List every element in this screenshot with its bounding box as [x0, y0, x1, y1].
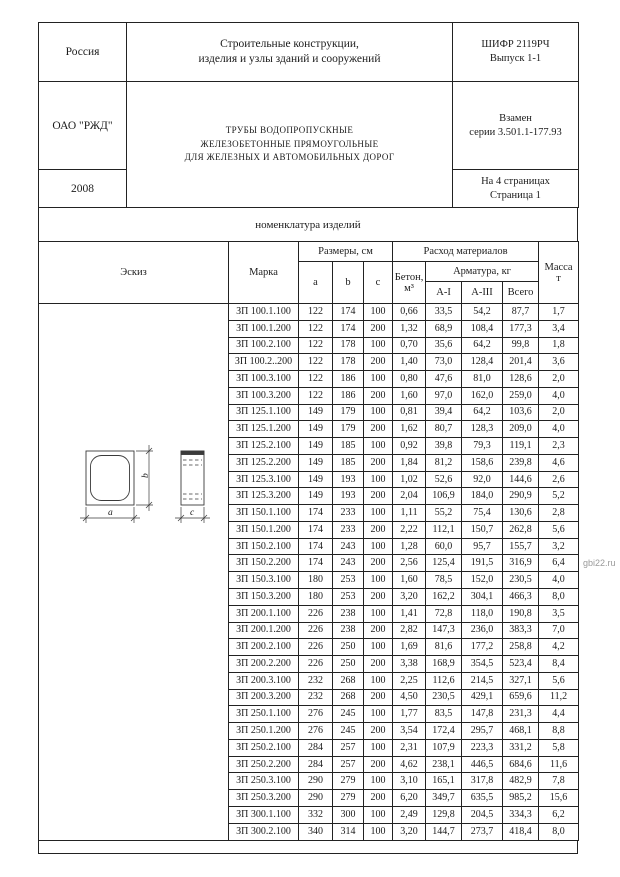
cell-b: 243 — [333, 538, 364, 555]
product-title-line3: ДЛЯ ЖЕЛЕЗНЫХ И АВТОМОБИЛЬНЫХ ДОРОГ — [127, 151, 452, 165]
cell-b: 178 — [333, 337, 364, 354]
dim-label-a: a — [108, 508, 113, 518]
cell-mass: 4,4 — [539, 706, 579, 723]
column-header-materials: Расход материалов — [393, 242, 539, 262]
dim-label-c: c — [190, 508, 195, 518]
cell-mark: ЗП 150.2.100 — [229, 538, 299, 555]
cell-mark: ЗП 125.1.200 — [229, 421, 299, 438]
cell-a: 122 — [299, 354, 333, 371]
cell-a1: 33,5 — [426, 304, 462, 321]
table-header: Эскиз Марка Размеры, см Расход материало… — [39, 242, 579, 304]
column-header-dim-c: c — [364, 262, 393, 304]
cell-a1: 230,5 — [426, 689, 462, 706]
cell-a1: 97,0 — [426, 387, 462, 404]
cell-a: 226 — [299, 656, 333, 673]
product-title-line1: ТРУБЫ ВОДОПРОПУСКНЫЕ — [127, 124, 452, 138]
cell-a1: 55,2 — [426, 505, 462, 522]
mass-header-line1: Масса — [539, 262, 578, 273]
pagination-line1: На 4 страницах — [453, 175, 578, 189]
cell-b: 174 — [333, 304, 364, 321]
cell-a3: 429,1 — [462, 689, 503, 706]
cell-a1: 238,1 — [426, 756, 462, 773]
cell-c: 200 — [364, 723, 393, 740]
cell-mark: ЗП 100.3.100 — [229, 371, 299, 388]
cell-b: 257 — [333, 756, 364, 773]
country-cell: Россия — [39, 23, 127, 82]
cell-total: 290,9 — [503, 488, 539, 505]
cell-concrete: 3,38 — [393, 656, 426, 673]
cell-mass: 2,0 — [539, 371, 579, 388]
cell-total: 209,0 — [503, 421, 539, 438]
table-row: a b c ЗП 100.1.1001221741000,6633,554,28… — [39, 304, 579, 321]
cell-a: 226 — [299, 622, 333, 639]
cell-a: 232 — [299, 689, 333, 706]
cell-mark: ЗП 125.2.100 — [229, 438, 299, 455]
column-header-rebar-total: Всего — [503, 282, 539, 304]
cell-mass: 7,0 — [539, 622, 579, 639]
cell-c: 100 — [364, 605, 393, 622]
cell-a3: 177,2 — [462, 639, 503, 656]
cell-c: 100 — [364, 806, 393, 823]
cell-a3: 162,0 — [462, 387, 503, 404]
cell-a1: 35,6 — [426, 337, 462, 354]
cell-a3: 295,7 — [462, 723, 503, 740]
cell-a3: 128,3 — [462, 421, 503, 438]
cell-total: 128,6 — [503, 371, 539, 388]
cell-a3: 92,0 — [462, 471, 503, 488]
column-header-dim-a: a — [299, 262, 333, 304]
replaces-cell: Взамен серии 3.501.1-177.93 — [453, 82, 579, 170]
cell-a1: 349,7 — [426, 790, 462, 807]
cell-total: 316,9 — [503, 555, 539, 572]
cell-mark: ЗП 150.3.100 — [229, 572, 299, 589]
cell-c: 200 — [364, 421, 393, 438]
cell-c: 100 — [364, 404, 393, 421]
cell-b: 238 — [333, 622, 364, 639]
cell-concrete: 2,22 — [393, 521, 426, 538]
cell-total: 259,0 — [503, 387, 539, 404]
cell-mass: 8,0 — [539, 589, 579, 606]
cell-concrete: 3,54 — [393, 723, 426, 740]
cell-a1: 168,9 — [426, 656, 462, 673]
cell-c: 100 — [364, 739, 393, 756]
cell-c: 200 — [364, 656, 393, 673]
cell-mass: 4,0 — [539, 421, 579, 438]
column-header-concrete: Бетон, м³ — [393, 262, 426, 304]
column-header-rebar-a3: А-III — [462, 282, 503, 304]
cell-b: 268 — [333, 689, 364, 706]
cell-a3: 95,7 — [462, 538, 503, 555]
cell-a: 149 — [299, 438, 333, 455]
column-header-dim-b: b — [333, 262, 364, 304]
cell-c: 100 — [364, 773, 393, 790]
cell-b: 300 — [333, 806, 364, 823]
pipe-sketch-cell: a b c — [39, 304, 229, 841]
cell-a: 122 — [299, 320, 333, 337]
cell-mark: ЗП 250.1.200 — [229, 723, 299, 740]
cell-total: 87,7 — [503, 304, 539, 321]
cell-concrete: 1,28 — [393, 538, 426, 555]
cell-b: 314 — [333, 823, 364, 840]
cell-a3: 108,4 — [462, 320, 503, 337]
cell-total: 262,8 — [503, 521, 539, 538]
cell-c: 100 — [364, 572, 393, 589]
cell-a1: 39,4 — [426, 404, 462, 421]
cell-a3: 81,0 — [462, 371, 503, 388]
cell-concrete: 1,11 — [393, 505, 426, 522]
cell-total: 466,3 — [503, 589, 539, 606]
cell-concrete: 2,49 — [393, 806, 426, 823]
cell-b: 233 — [333, 505, 364, 522]
cell-a1: 83,5 — [426, 706, 462, 723]
cell-a: 180 — [299, 572, 333, 589]
cell-a: 122 — [299, 304, 333, 321]
cell-mark: ЗП 250.3.200 — [229, 790, 299, 807]
cell-a3: 75,4 — [462, 505, 503, 522]
cell-a3: 128,4 — [462, 354, 503, 371]
cell-a1: 39,8 — [426, 438, 462, 455]
cipher-line2: Выпуск 1-1 — [453, 52, 578, 66]
cell-b: 257 — [333, 739, 364, 756]
cell-mass: 8,4 — [539, 656, 579, 673]
cell-b: 193 — [333, 471, 364, 488]
cell-concrete: 3,20 — [393, 589, 426, 606]
cell-mark: ЗП 100.2.100 — [229, 337, 299, 354]
cell-mark: ЗП 250.1.100 — [229, 706, 299, 723]
cell-total: 201,4 — [503, 354, 539, 371]
cell-concrete: 2,82 — [393, 622, 426, 639]
cell-concrete: 4,50 — [393, 689, 426, 706]
cell-a1: 125,4 — [426, 555, 462, 572]
cell-concrete: 1,60 — [393, 572, 426, 589]
cell-c: 200 — [364, 756, 393, 773]
replaces-line1: Взамен — [453, 112, 578, 126]
cipher-cell: ШИФР 2119РЧ Выпуск 1-1 — [453, 23, 579, 82]
cell-total: 177,3 — [503, 320, 539, 337]
cell-concrete: 6,20 — [393, 790, 426, 807]
cell-a1: 106,9 — [426, 488, 462, 505]
cell-mass: 4,2 — [539, 639, 579, 656]
cell-b: 243 — [333, 555, 364, 572]
cell-a: 174 — [299, 505, 333, 522]
cell-c: 200 — [364, 689, 393, 706]
cell-a3: 214,5 — [462, 672, 503, 689]
cell-concrete: 1,62 — [393, 421, 426, 438]
cell-c: 100 — [364, 304, 393, 321]
cell-mark: ЗП 200.2.200 — [229, 656, 299, 673]
cell-concrete: 0,80 — [393, 371, 426, 388]
cell-b: 268 — [333, 672, 364, 689]
product-title-line2: ЖЕЛЕЗОБЕТОННЫЕ ПРЯМОУГОЛЬНЫЕ — [127, 138, 452, 152]
cell-mark: ЗП 100.2..200 — [229, 354, 299, 371]
cell-a3: 64,2 — [462, 337, 503, 354]
cell-mark: ЗП 250.3.100 — [229, 773, 299, 790]
cell-c: 100 — [364, 823, 393, 840]
cell-a3: 236,0 — [462, 622, 503, 639]
cell-mass: 2,3 — [539, 438, 579, 455]
cell-c: 100 — [364, 639, 393, 656]
cell-mark: ЗП 300.2.100 — [229, 823, 299, 840]
cell-a: 332 — [299, 806, 333, 823]
cell-b: 186 — [333, 371, 364, 388]
cell-a1: 81,6 — [426, 639, 462, 656]
cell-b: 250 — [333, 639, 364, 656]
cipher-line1: ШИФР 2119РЧ — [453, 38, 578, 52]
cell-a1: 112,1 — [426, 521, 462, 538]
cell-b: 179 — [333, 404, 364, 421]
cell-a: 149 — [299, 421, 333, 438]
cell-mass: 2,6 — [539, 471, 579, 488]
cell-total: 334,3 — [503, 806, 539, 823]
cell-c: 200 — [364, 387, 393, 404]
cell-concrete: 2,25 — [393, 672, 426, 689]
cell-concrete: 0,66 — [393, 304, 426, 321]
cell-mark: ЗП 200.2.100 — [229, 639, 299, 656]
cell-a3: 304,1 — [462, 589, 503, 606]
cell-mark: ЗП 200.1.100 — [229, 605, 299, 622]
cell-concrete: 0,81 — [393, 404, 426, 421]
cell-mass: 2,0 — [539, 404, 579, 421]
cell-mark: ЗП 200.3.200 — [229, 689, 299, 706]
catalog-title-cell: Строительные конструкции, изделия и узлы… — [127, 23, 453, 82]
cell-mark: ЗП 150.3.200 — [229, 589, 299, 606]
cell-mark: ЗП 125.3.200 — [229, 488, 299, 505]
cell-a3: 354,5 — [462, 656, 503, 673]
cell-a: 226 — [299, 605, 333, 622]
cell-concrete: 1,02 — [393, 471, 426, 488]
cell-a: 290 — [299, 773, 333, 790]
cell-a1: 112,6 — [426, 672, 462, 689]
catalog-title-line2: изделия и узлы зданий и сооружений — [127, 52, 452, 67]
cell-concrete: 1,84 — [393, 454, 426, 471]
cell-a1: 81,2 — [426, 454, 462, 471]
year-cell: 2008 — [39, 170, 127, 208]
cell-concrete: 3,10 — [393, 773, 426, 790]
cell-mass: 2,8 — [539, 505, 579, 522]
column-header-mark: Марка — [229, 242, 299, 304]
cell-a: 122 — [299, 387, 333, 404]
replaces-line2: серии 3.501.1-177.93 — [453, 126, 578, 140]
cell-b: 253 — [333, 589, 364, 606]
cell-total: 523,4 — [503, 656, 539, 673]
pipe-sketch-drawing: a b c — [39, 304, 229, 544]
cell-concrete: 4,62 — [393, 756, 426, 773]
cell-b: 185 — [333, 438, 364, 455]
cell-mass: 1,7 — [539, 304, 579, 321]
cell-mark: ЗП 200.1.200 — [229, 622, 299, 639]
cell-total: 327,1 — [503, 672, 539, 689]
title-block-row-1: Россия Строительные конструкции, изделия… — [39, 23, 579, 82]
cell-concrete: 0,92 — [393, 438, 426, 455]
cell-mark: ЗП 100.1.200 — [229, 320, 299, 337]
cell-a: 149 — [299, 404, 333, 421]
cell-c: 100 — [364, 371, 393, 388]
cell-mass: 4,0 — [539, 572, 579, 589]
title-block: Россия Строительные конструкции, изделия… — [38, 22, 579, 208]
cell-a1: 129,8 — [426, 806, 462, 823]
concrete-header-line2: м³ — [393, 283, 425, 294]
cell-mass: 8,0 — [539, 823, 579, 840]
catalog-title-line1: Строительные конструкции, — [127, 37, 452, 52]
cell-b: 174 — [333, 320, 364, 337]
cell-a3: 184,0 — [462, 488, 503, 505]
cell-c: 200 — [364, 790, 393, 807]
cell-concrete: 1,60 — [393, 387, 426, 404]
column-header-mass: Масса т — [539, 242, 579, 304]
cell-a: 180 — [299, 589, 333, 606]
cell-a: 232 — [299, 672, 333, 689]
cell-concrete: 3,20 — [393, 823, 426, 840]
cell-c: 200 — [364, 320, 393, 337]
cell-a1: 147,3 — [426, 622, 462, 639]
cell-a: 149 — [299, 471, 333, 488]
cell-concrete: 2,31 — [393, 739, 426, 756]
cell-a1: 162,2 — [426, 589, 462, 606]
cell-a3: 446,5 — [462, 756, 503, 773]
cell-mass: 5,8 — [539, 739, 579, 756]
pipe-front-view — [86, 451, 134, 505]
cell-mass: 5,2 — [539, 488, 579, 505]
cell-b: 193 — [333, 488, 364, 505]
cell-a1: 144,7 — [426, 823, 462, 840]
cell-c: 200 — [364, 454, 393, 471]
cell-total: 119,1 — [503, 438, 539, 455]
cell-b: 250 — [333, 656, 364, 673]
cell-concrete: 1,32 — [393, 320, 426, 337]
cell-a: 290 — [299, 790, 333, 807]
cell-a3: 158,6 — [462, 454, 503, 471]
cell-a: 174 — [299, 555, 333, 572]
cell-b: 253 — [333, 572, 364, 589]
cell-a: 174 — [299, 538, 333, 555]
cell-a1: 107,9 — [426, 739, 462, 756]
concrete-header-line1: Бетон, — [393, 272, 425, 283]
cell-mark: ЗП 125.3.100 — [229, 471, 299, 488]
cell-mass: 6,2 — [539, 806, 579, 823]
cell-a: 174 — [299, 521, 333, 538]
cell-c: 200 — [364, 589, 393, 606]
cell-c: 200 — [364, 555, 393, 572]
cell-a3: 152,0 — [462, 572, 503, 589]
cell-mass: 5,6 — [539, 521, 579, 538]
cell-mark: ЗП 100.1.100 — [229, 304, 299, 321]
cell-a: 149 — [299, 454, 333, 471]
cell-b: 179 — [333, 421, 364, 438]
pagination-cell: На 4 страницах Страница 1 — [453, 170, 579, 208]
cell-c: 100 — [364, 538, 393, 555]
cell-total: 482,9 — [503, 773, 539, 790]
cell-mass: 6,4 — [539, 555, 579, 572]
cell-mark: ЗП 300.1.100 — [229, 806, 299, 823]
cell-c: 100 — [364, 471, 393, 488]
cell-a: 276 — [299, 723, 333, 740]
cell-mass: 15,6 — [539, 790, 579, 807]
cell-a: 284 — [299, 756, 333, 773]
cell-a3: 64,2 — [462, 404, 503, 421]
cell-mass: 3,5 — [539, 605, 579, 622]
cell-concrete: 2,04 — [393, 488, 426, 505]
cell-b: 238 — [333, 605, 364, 622]
cell-total: 331,2 — [503, 739, 539, 756]
watermark: gbi22.ru — [583, 558, 616, 568]
cell-a1: 80,7 — [426, 421, 462, 438]
organization-cell: ОАО "РЖД" — [39, 82, 127, 170]
cell-total: 99,8 — [503, 337, 539, 354]
cell-total: 231,3 — [503, 706, 539, 723]
cell-c: 200 — [364, 622, 393, 639]
column-header-dimensions: Размеры, см — [299, 242, 393, 262]
cell-total: 190,8 — [503, 605, 539, 622]
nomenclature-table: Эскиз Марка Размеры, см Расход материало… — [38, 241, 579, 841]
cell-total: 144,6 — [503, 471, 539, 488]
table-body: a b c ЗП 100.1.1001221741000,6633,554,28… — [39, 304, 579, 841]
cell-total: 468,1 — [503, 723, 539, 740]
cell-mass: 4,0 — [539, 387, 579, 404]
mass-header-line2: т — [539, 273, 578, 284]
cell-mark: ЗП 150.2.200 — [229, 555, 299, 572]
cell-a3: 223,3 — [462, 739, 503, 756]
product-title-cell: ТРУБЫ ВОДОПРОПУСКНЫЕ ЖЕЛЕЗОБЕТОННЫЕ ПРЯМ… — [127, 82, 453, 208]
cell-a3: 118,0 — [462, 605, 503, 622]
cell-a1: 52,6 — [426, 471, 462, 488]
cell-a: 276 — [299, 706, 333, 723]
cell-c: 100 — [364, 438, 393, 455]
cell-mark: ЗП 250.2.100 — [229, 739, 299, 756]
cell-b: 186 — [333, 387, 364, 404]
cell-b: 178 — [333, 354, 364, 371]
cell-concrete: 0,70 — [393, 337, 426, 354]
cell-concrete: 1,69 — [393, 639, 426, 656]
cell-total: 130,6 — [503, 505, 539, 522]
cell-total: 659,6 — [503, 689, 539, 706]
cell-mass: 11,6 — [539, 756, 579, 773]
cell-total: 155,7 — [503, 538, 539, 555]
cell-a: 122 — [299, 371, 333, 388]
cell-a1: 72,8 — [426, 605, 462, 622]
cell-b: 279 — [333, 773, 364, 790]
dim-label-b: b — [141, 473, 151, 478]
cell-b: 245 — [333, 706, 364, 723]
column-header-rebar-a1: А-I — [426, 282, 462, 304]
cell-mass: 3,6 — [539, 354, 579, 371]
cell-total: 258,8 — [503, 639, 539, 656]
cell-c: 200 — [364, 521, 393, 538]
cell-a: 284 — [299, 739, 333, 756]
cell-a1: 73,0 — [426, 354, 462, 371]
cell-c: 200 — [364, 488, 393, 505]
cell-a1: 165,1 — [426, 773, 462, 790]
cell-concrete: 1,77 — [393, 706, 426, 723]
cell-total: 985,2 — [503, 790, 539, 807]
cell-c: 100 — [364, 672, 393, 689]
cell-total: 230,5 — [503, 572, 539, 589]
bottom-frame-strip — [38, 840, 578, 854]
cell-mass: 7,8 — [539, 773, 579, 790]
cell-a3: 204,5 — [462, 806, 503, 823]
cell-mass: 1,8 — [539, 337, 579, 354]
cell-a3: 147,8 — [462, 706, 503, 723]
cell-total: 383,3 — [503, 622, 539, 639]
cell-total: 418,4 — [503, 823, 539, 840]
cell-total: 103,6 — [503, 404, 539, 421]
section-title: номенклатура изделий — [38, 207, 578, 242]
cell-concrete: 2,56 — [393, 555, 426, 572]
cell-mark: ЗП 150.1.200 — [229, 521, 299, 538]
cell-a3: 635,5 — [462, 790, 503, 807]
cell-a: 340 — [299, 823, 333, 840]
cell-b: 185 — [333, 454, 364, 471]
cell-mark: ЗП 125.2.200 — [229, 454, 299, 471]
